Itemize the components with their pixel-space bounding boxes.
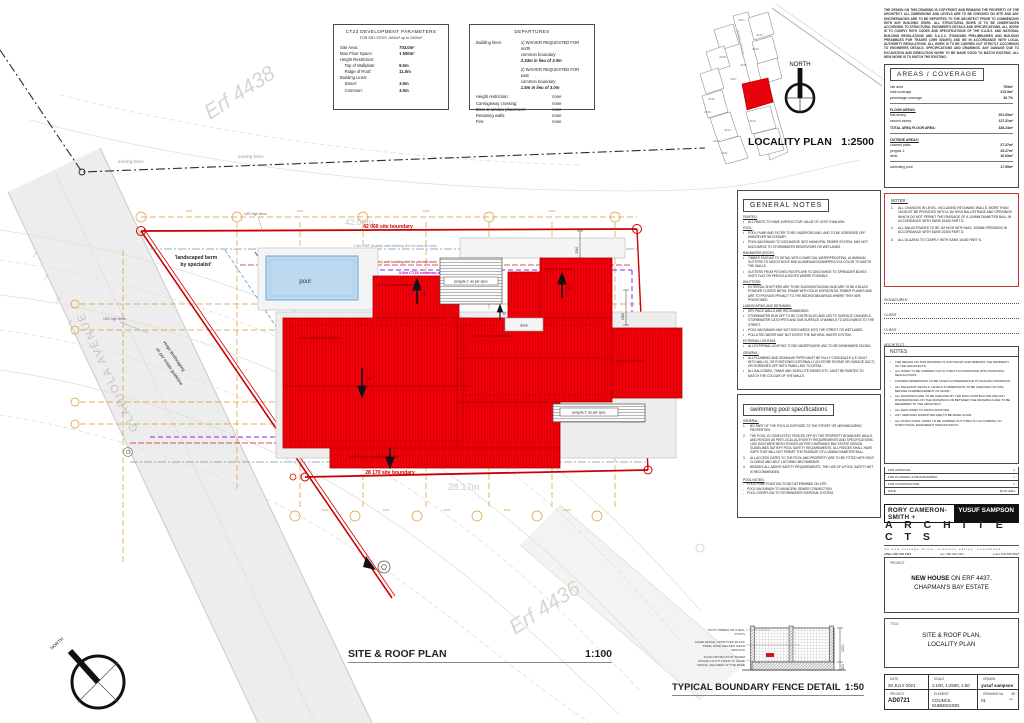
pool: pool xyxy=(266,256,358,300)
site-plan-scale: 1:100 xyxy=(585,648,612,660)
scale-label: SCALE xyxy=(932,676,974,682)
svg-text:roof 2: as per specification: roof 2: as per specification xyxy=(473,334,513,338)
departures-rows: Height restriction: none Carriageway cro… xyxy=(476,94,588,124)
ct23-rows: Site Area: 703.0m² Max Floor Space: 1 50… xyxy=(340,45,442,94)
north-compass-site: NORTH xyxy=(49,636,124,708)
floor-areas-header: FLOOR AREAS: xyxy=(890,108,1013,112)
svg-text:4439: 4439 xyxy=(704,110,711,114)
drawing-title: SITE & ROOF PLAN, LOCALITY PLAN xyxy=(888,631,1015,650)
pool-specs-panel: swimming pool specifications GENERAL: NO… xyxy=(737,394,881,518)
pool-spec-item: NO PART OF THE POOL IS EXPOSED TO THE ST… xyxy=(743,424,875,432)
pergola-1: pergola 1: as per spec xyxy=(440,258,502,304)
area-row: pergola 1:25.27m² xyxy=(890,149,1013,153)
bl-leanto-top-label: 1.5m CBE (estate) side building line for… xyxy=(353,244,436,248)
note-item: EXTERNAL SHUTTERS ARE TO BE SLIDING/STAC… xyxy=(743,285,875,301)
drawing-sheet: GLADIOLA AVENUE 3.25 3.50 3.75 4.00 xyxy=(0,0,1024,723)
note-item: ALL PLUMBING AND DRAINAGE PIPES MUST BE … xyxy=(743,356,875,368)
drawing-no-label: DRAWING No xyxy=(981,691,1005,697)
pool-note-item: POOL OVERFLOW TO STORMWATER DISPOSAL SYS… xyxy=(743,491,875,495)
deck: deck xyxy=(505,318,543,331)
svg-text:roof 1: as per specification: roof 1: as per specification xyxy=(300,336,340,340)
project-no-label: PROJECT xyxy=(888,691,925,697)
waiver-2-value: 1.5m in lieu of 3.0m xyxy=(521,85,588,91)
pool-label: pool xyxy=(299,279,310,285)
pool-specs-general-header: GENERAL: xyxy=(743,419,875,423)
notes-section: PAINTED: ALL PAINTS TO HAVE A REFLECTIVE… xyxy=(743,215,875,224)
ct23-title: CT23 DEVELOPMENT PARAMETERS xyxy=(340,29,442,36)
fence-detail-title: TYPICAL BOUNDARY FENCE DETAIL 1:50 xyxy=(672,682,864,696)
svg-text:3000: 3000 xyxy=(564,508,571,512)
notes-section: RAINWATER (ROOF): TIMBER FASCIAS TO DETA… xyxy=(743,251,875,278)
notes-section: SHUTTERS: EXTERNAL SHUTTERS ARE TO BE SL… xyxy=(743,280,875,301)
north-label-site: NORTH xyxy=(49,636,64,650)
svg-text:4437: 4437 xyxy=(730,77,737,81)
note-item: ALL RELEVANT DETAILS, LEVELS & DIMENSION… xyxy=(890,386,1013,394)
note-item: ALL BALUSTRADES TO BE 1M HIGH WITH MAX. … xyxy=(891,226,1012,235)
note-item: ALL STRUCTURAL WORK TO BE CARRIED OUT ST… xyxy=(890,420,1013,428)
svg-text:7.5°: 7.5° xyxy=(566,287,572,291)
pool-spec-item: THE POOL IS COMPLETELY FENCED OFF BY THE… xyxy=(743,434,875,454)
signature-lines: CLIENT :CLIENT :ARCHITECT : xyxy=(884,313,1019,349)
svg-text:3000: 3000 xyxy=(383,508,390,512)
notes-section: POOL: POOL PUMP AND FILTER TO BE UNDERGR… xyxy=(743,226,875,248)
note-item: ALL WORK TO BE CARRIED OUT IN STRICT ACC… xyxy=(890,370,1013,378)
signature-line[interactable]: CLIENT : xyxy=(884,313,1019,319)
svg-text:4433: 4433 xyxy=(738,18,745,22)
dim-2340: 2340 xyxy=(575,247,579,254)
area-row: second storey:127.21m² xyxy=(890,119,1013,123)
departure-row: Fire: none xyxy=(476,119,588,125)
approval-table: FOR APPROVAL x FOR PLANNING & PROGRAMMIN… xyxy=(884,467,1019,495)
note-item: FIGURED DIMENSIONS TO BE TAKEN IN PREFER… xyxy=(890,380,1013,384)
area-row: deck:10.63m² xyxy=(890,154,1013,158)
note-item: DRY PACK WALLS ARE RECOMMENDED. xyxy=(743,309,875,313)
note-item: ALL BALCONIES, TANKS AND SATELLITE DISHE… xyxy=(743,369,875,377)
svg-text:4426: 4426 xyxy=(749,119,756,123)
approval-row: FOR APPROVAL x xyxy=(884,467,1019,474)
svg-text:7.5°: 7.5° xyxy=(421,293,427,297)
parameter-row: Common: 3.0m xyxy=(340,88,442,94)
areas-group-2: first storey:201.03m² second storey:127.… xyxy=(890,113,1013,123)
project-name: NEW HOUSE ON ERF 4437, CHAPMAN'S BAY EST… xyxy=(888,574,1015,593)
areas-coverage-panel: AREAS / COVERAGE site area703m² total co… xyxy=(884,64,1019,188)
notes-section: EXTERNAL LIGHTING: ALL EXTERNAL LIGHTING… xyxy=(743,339,875,348)
rev-label: rev xyxy=(1007,696,1015,702)
svg-text:7.5°: 7.5° xyxy=(366,377,372,381)
rory-phone: rory: 082 426 4437 xyxy=(940,552,964,556)
existing-fence-label-1: existing fence xyxy=(118,159,144,164)
total-floor-area-row: TOTAL AREA FLOOR AREA: 328.24m² xyxy=(890,126,1013,130)
svg-text:POSTS: POSTS xyxy=(735,632,746,636)
note-item: ANY SERVICES DISRUPTED ARE TO BE MADE GO… xyxy=(890,414,1013,418)
approval-row: FOR PLANNING & PROGRAMMING x xyxy=(884,474,1019,481)
pool-notes-header: POOL NOTES: xyxy=(743,478,875,482)
info-table: DATE 20 JULY 2021 SCALE 1:100, 1:2500, 1… xyxy=(884,674,1019,710)
svg-text:3000: 3000 xyxy=(549,209,556,213)
svg-text:4428: 4428 xyxy=(740,63,747,67)
area-row: covered patio:27.37m² xyxy=(890,143,1013,147)
berm-label-2: by specialist' xyxy=(180,262,211,268)
title-label: TITLE xyxy=(888,621,1015,627)
fence-dim-300: 300 xyxy=(841,664,845,670)
pool-notes-items: POOL PUMP POSITION TO BE DETERMINED ON S… xyxy=(743,482,875,495)
notes-red-items: ALL CHANGES IN LEVEL, INCLUDING RETAININ… xyxy=(891,206,1012,242)
svg-text:4435: 4435 xyxy=(756,33,763,37)
existing-fence-label-2: existing fence xyxy=(238,154,264,159)
note-item: ALL EXTERNAL LIGHTING TO BE UNOBTRUSIVE … xyxy=(743,344,875,348)
pool-note-item: POOL PUMP POSITION TO BE DETERMINED ON S… xyxy=(743,482,875,486)
drawn-label: DRAWN xyxy=(981,676,1015,682)
svg-text:3000: 3000 xyxy=(444,508,451,512)
svg-text:3000: 3000 xyxy=(322,508,329,512)
fence-detail-title-text: TYPICAL BOUNDARY FENCE DETAIL xyxy=(672,682,841,693)
yusuf-phone: yusuf: 078 668 5823 xyxy=(993,552,1019,556)
svg-text:4440: 4440 xyxy=(708,97,715,101)
boundary-top-label: 42 060 site boundary xyxy=(363,224,413,230)
note-item: GUTTERS FROM PITCHED ROOFS ARE TO DISCHA… xyxy=(743,270,875,278)
svg-text:3000: 3000 xyxy=(504,508,511,512)
pool-specs-title: swimming pool specifications xyxy=(743,404,834,416)
fence-dim-1200: 1200 xyxy=(841,644,845,652)
svg-text:4438: 4438 xyxy=(719,55,726,59)
project-box: PROJECT NEW HOUSE ON ERF 4437, CHAPMAN'S… xyxy=(884,557,1019,613)
note-item: ALL NEW WORK TO MATCH EXISTING. xyxy=(890,409,1013,413)
architects-address: 33 sea cottage drive, crofters valley, n… xyxy=(884,547,1019,551)
svg-text:4431: 4431 xyxy=(721,151,728,155)
office-phone: office: 087 379 7114 xyxy=(884,552,911,556)
erf-4436-label: Erf 4436 xyxy=(505,576,584,639)
svg-text:4429: 4429 xyxy=(752,47,759,51)
departures-title: DEPARTURES xyxy=(476,29,588,36)
svg-text:roof 5: as per spec: roof 5: as per spec xyxy=(616,359,644,363)
dim-bottom-m: 28.17m xyxy=(448,482,480,493)
erf-4438-label: Erf 4438 xyxy=(200,61,279,124)
general-notes-title: GENERAL NOTES xyxy=(743,199,829,212)
svg-text:7.5°: 7.5° xyxy=(394,455,400,459)
note-item: ALL DRAWINGS ARE TO BE CHECKED BY THE MA… xyxy=(890,395,1013,407)
note-item: POLLUTED WATER MAY NOT ENTER THE NATURAL… xyxy=(743,333,875,337)
element-value: COUNCIL SUBMISSION xyxy=(932,698,974,708)
drawn-value: yusuf sampson xyxy=(981,683,1015,688)
notes2-panel: NOTES THE DESIGN ON THIS DRAWING IS COPY… xyxy=(884,346,1019,464)
project-label: PROJECT xyxy=(888,560,1015,566)
title-box: TITLE SITE & ROOF PLAN, LOCALITY PLAN xyxy=(884,618,1019,668)
general-notes-panel: GENERAL NOTES PAINTED: ALL PAINTS TO HAV… xyxy=(737,190,881,390)
note-item: ALL CHANGES IN LEVEL, INCLUDING RETAININ… xyxy=(891,206,1012,223)
areas-group-1: site area703m² total coverage213.5m² per… xyxy=(890,85,1013,100)
date-label: DATE xyxy=(888,676,925,682)
svg-text:FENCE, SECURED AT THE BASE: FENCE, SECURED AT THE BASE xyxy=(697,663,745,667)
locality-scale: 1:2500 xyxy=(841,136,874,148)
notes-red-panel: NOTES : ALL CHANGES IN LEVEL, INCLUDING … xyxy=(884,193,1019,287)
notes-red-title: NOTES : xyxy=(891,198,1012,203)
site-plan-title-text: SITE & ROOF PLAN xyxy=(348,648,447,660)
building-lines-label: Building lines: xyxy=(476,40,521,92)
signature-line[interactable]: CLIENT : xyxy=(884,328,1019,334)
fence-detail-scale: 1:50 xyxy=(845,682,864,693)
svg-text:1200 high fence: 1200 high fence xyxy=(244,212,267,216)
notes-section: GENERAL: ALL PLUMBING AND DRAINAGE PIPES… xyxy=(743,351,875,378)
pool-specs-items: NO PART OF THE POOL IS EXPOSED TO THE ST… xyxy=(743,424,875,474)
signatures-panel: SIGNATURES: CLIENT :CLIENT :ARCHITECT : xyxy=(884,298,1019,349)
area-row: percentage coverage30.7% xyxy=(890,96,1013,100)
pool-note-item: POOL BACKWASH TO MUNICIPAL SEWER CONNECT… xyxy=(743,487,875,491)
north-label-locality: NORTH xyxy=(789,62,810,68)
approval-row: FOR CONSTRUCTION x xyxy=(884,481,1019,488)
notes2-title: NOTES xyxy=(885,347,1018,357)
note-item: STORMWATER RUN OFF TO BE CONTROLLED AND … xyxy=(743,314,875,326)
swimming-pool-row: swimming pool: 17.55m² xyxy=(890,165,1013,169)
pergola-2: pergola 2: as per spec xyxy=(553,404,645,422)
pergola-1-label: pergola 1: as per spec xyxy=(454,280,488,284)
ct23-subtitle: FOR SR1 SITES >600m² up to 1000m² xyxy=(340,36,442,41)
pool-spec-item: ALL ACCESS GATES TO THE POOL AND PROPERT… xyxy=(743,456,875,464)
svg-text:roof 6: as per specification: roof 6: as per specification xyxy=(350,455,390,459)
svg-text:3000: 3000 xyxy=(186,209,193,213)
svg-text:3000: 3000 xyxy=(423,209,430,213)
areas-group-3: covered patio:27.37m² pergola 1:25.27m² … xyxy=(890,143,1013,158)
approval-row: DATE 20-07-2021 xyxy=(884,488,1019,495)
area-row: total coverage213.5m² xyxy=(890,90,1013,94)
copyright-text: THE DESIGN ON THIS DRAWING IS COPYRIGHT … xyxy=(884,8,1019,59)
note-item: THE DESIGN ON THIS DRAWING IS COPYRIGHT … xyxy=(890,361,1013,369)
north-compass-locality: NORTH xyxy=(786,62,814,112)
drawing-no-value: 01 xyxy=(981,698,1005,703)
note-item: POOL PUMP AND FILTER TO BE UNDERGROUND, … xyxy=(743,231,875,239)
pool-spec-item: BESIDES ALL ABOVE SAFETY REQUIREMENTS, T… xyxy=(743,465,875,473)
note-item: POOL BACKWASH MAY NOT DISCHARGE INTO THE… xyxy=(743,328,875,332)
ct23-parameters-table: CT23 DEVELOPMENT PARAMETERS FOR SR1 SITE… xyxy=(333,24,449,110)
outside-areas-header: OUTSIDE AREAS: xyxy=(890,138,1013,142)
svg-text:1200 high fence: 1200 high fence xyxy=(103,317,126,321)
note-item: ALL GLAZING TO COMPLY WITH SANS 10400 PA… xyxy=(891,238,1012,242)
waivers: 1) WAIVER REQUESTED FOR northcommon boun… xyxy=(521,40,588,92)
locality-plan-title: LOCALITY PLAN 1:2500 xyxy=(748,136,874,148)
pergola-2-label: pergola 2: as per spec xyxy=(572,411,606,415)
architects-word: A R C H I T E C T S xyxy=(884,518,1019,546)
notes2-items: THE DESIGN ON THIS DRAWING IS COPYRIGHT … xyxy=(885,357,1018,430)
project-no-value: AD0721 xyxy=(888,698,925,704)
notes-section: LANDSCAPING AND RETAINING: DRY PACK WALL… xyxy=(743,304,875,337)
dim-1500: 1500 xyxy=(621,313,625,320)
general-notes-sections: PAINTED: ALL PAINTS TO HAVE A REFLECTIVE… xyxy=(743,215,875,378)
area-row: first storey:201.03m² xyxy=(890,113,1013,117)
departures-table: DEPARTURES Building lines: 1) WAIVER REQ… xyxy=(469,24,595,110)
svg-text:FENCING: FENCING xyxy=(731,648,746,652)
svg-text:4434: 4434 xyxy=(724,128,731,132)
svg-text:4432: 4432 xyxy=(713,139,720,143)
note-item: ALL PAINTS TO HAVE A REFLECTIVE VALUE OF… xyxy=(743,220,875,224)
date-value: 20 JULY 2021 xyxy=(888,683,925,688)
site-plan-title: SITE & ROOF PLAN 1:100 xyxy=(348,648,612,663)
berm-label-1: 'landscaped berm xyxy=(175,255,218,261)
svg-text:3000: 3000 xyxy=(297,209,304,213)
element-label: ELEMENT xyxy=(932,691,974,697)
svg-text:roof 4: as per spec: roof 4: as per spec xyxy=(544,267,572,271)
areas-title: AREAS / COVERAGE xyxy=(890,68,984,81)
boundary-bottom-label: 28 170 site boundary xyxy=(365,470,415,476)
scale-value: 1:100, 1:2500, 1:50 xyxy=(932,683,974,688)
deck-label: deck xyxy=(520,324,528,328)
note-item: TIMBER FASCIAS TO DETAIL WITH CHARCOAL W… xyxy=(743,256,875,268)
signatures-title: SIGNATURES: xyxy=(884,298,1019,304)
locality-title-text: LOCALITY PLAN xyxy=(748,136,832,148)
area-row: site area703m² xyxy=(890,85,1013,89)
note-item: POOL BACKWASH TO DISCHARGE INTO MUNICIPA… xyxy=(743,240,875,248)
svg-text:roof 3: as per specification: roof 3: as per specification xyxy=(377,283,417,287)
